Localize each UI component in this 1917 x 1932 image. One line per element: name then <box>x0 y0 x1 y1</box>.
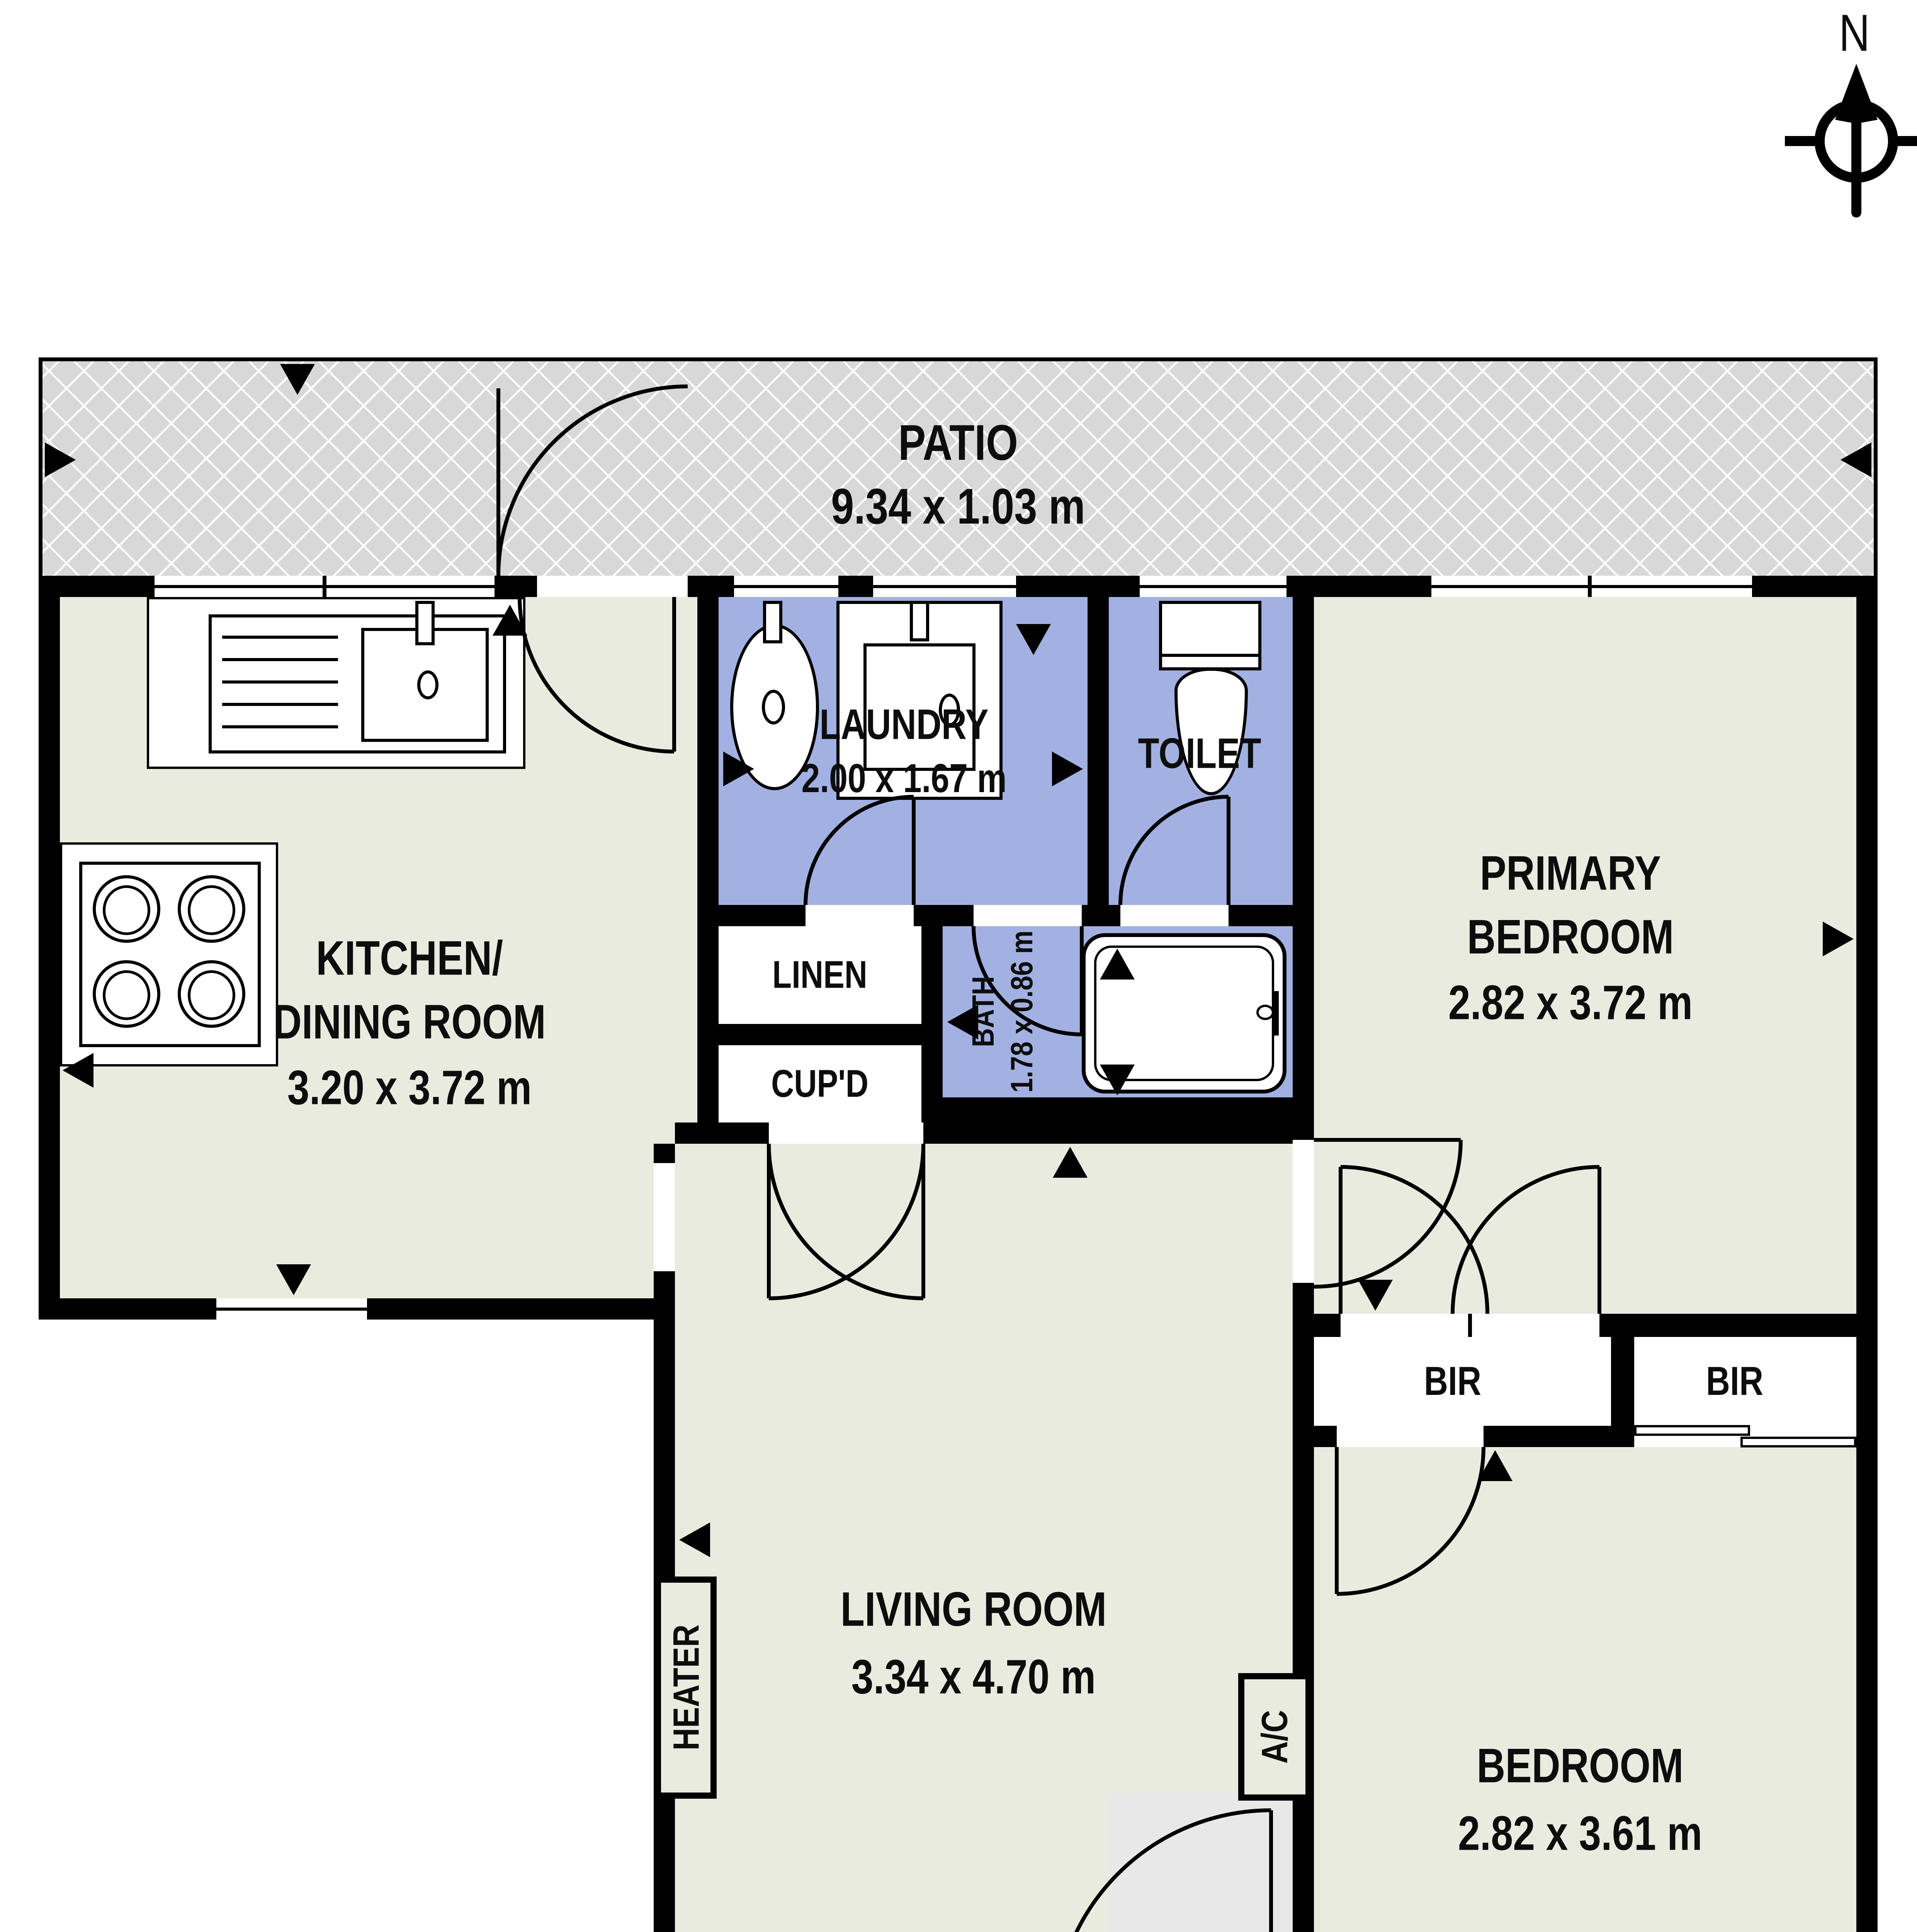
primary-bedroom-label-1: PRIMARY <box>1480 846 1661 901</box>
marker-arrow <box>45 442 76 477</box>
marker-arrow <box>679 1522 710 1557</box>
bath-dims: 1.78 x 0.86 m <box>1003 930 1041 1093</box>
kitchen-dims: 3.20 x 3.72 m <box>287 1060 532 1116</box>
living-dims: 3.34 x 4.70 m <box>851 1650 1096 1705</box>
marker-arrow <box>1053 1147 1088 1178</box>
linen-door-arc <box>806 797 914 905</box>
marker-arrow <box>1823 922 1854 956</box>
marker-arrow <box>1478 1450 1513 1481</box>
marker-arrow <box>1100 949 1135 980</box>
marker-arrow <box>1100 1065 1135 1095</box>
floor-plan: N PATIO 9.34 x 1.03 m LAUNDRY 2.00 x 1.6… <box>0 0 1917 1932</box>
bir-left-label: BIR <box>1424 1358 1481 1405</box>
marker-arrow <box>63 1053 93 1088</box>
bir-right-label: BIR <box>1706 1358 1763 1405</box>
bedroom-dims: 2.82 x 3.61 m <box>1458 1806 1703 1861</box>
ac-label: A/C <box>1254 1710 1296 1764</box>
bedroom-door-arc <box>1337 1447 1484 1594</box>
toilet-door-arc <box>1120 797 1229 905</box>
laundry-dims: 2.00 x 1.67 m <box>801 755 1006 802</box>
kitchen-door-arc <box>520 597 674 752</box>
cupboard-door-left-arc <box>769 1144 923 1298</box>
marker-arrow <box>493 605 527 636</box>
compass-north-label: N <box>1839 3 1870 63</box>
patio-dims: 9.34 x 1.03 m <box>831 477 1085 535</box>
marker-arrow <box>1052 752 1083 786</box>
marker-arrow <box>280 364 315 395</box>
primary-bedroom-label-2: BEDROOM <box>1467 910 1674 965</box>
patio-door-arc <box>498 386 688 576</box>
laundry-label: LAUNDRY <box>819 700 989 749</box>
cupboard-label: CUP'D <box>771 1062 868 1106</box>
marker-arrow <box>276 1264 311 1295</box>
primary-bedroom-dims: 2.82 x 3.72 m <box>1448 975 1693 1031</box>
marker-arrow <box>1016 624 1051 655</box>
primary-door-arc <box>1314 1140 1461 1287</box>
heater-label: HEATER <box>666 1624 708 1750</box>
patio-label: PATIO <box>898 413 1018 471</box>
living-label: LIVING ROOM <box>840 1582 1106 1637</box>
marker-arrow <box>947 1005 978 1039</box>
bedroom-label: BEDROOM <box>1477 1738 1683 1794</box>
cupboard-door-right-arc <box>769 1144 923 1298</box>
bir-door-2-arc <box>1453 1167 1599 1314</box>
toilet-label: TOILET <box>1138 729 1261 778</box>
kitchen-label-1: KITCHEN/ <box>316 931 503 986</box>
kitchen-label-2: DINING ROOM <box>273 995 546 1050</box>
compass-icon <box>1785 58 1917 220</box>
linen-label: LINEN <box>772 953 867 997</box>
entry-door-arc <box>1055 1810 1271 1932</box>
marker-arrow <box>1358 1280 1393 1311</box>
door-arcs-layer <box>0 0 1917 1932</box>
marker-arrow <box>723 752 754 786</box>
marker-arrow <box>1841 442 1871 477</box>
